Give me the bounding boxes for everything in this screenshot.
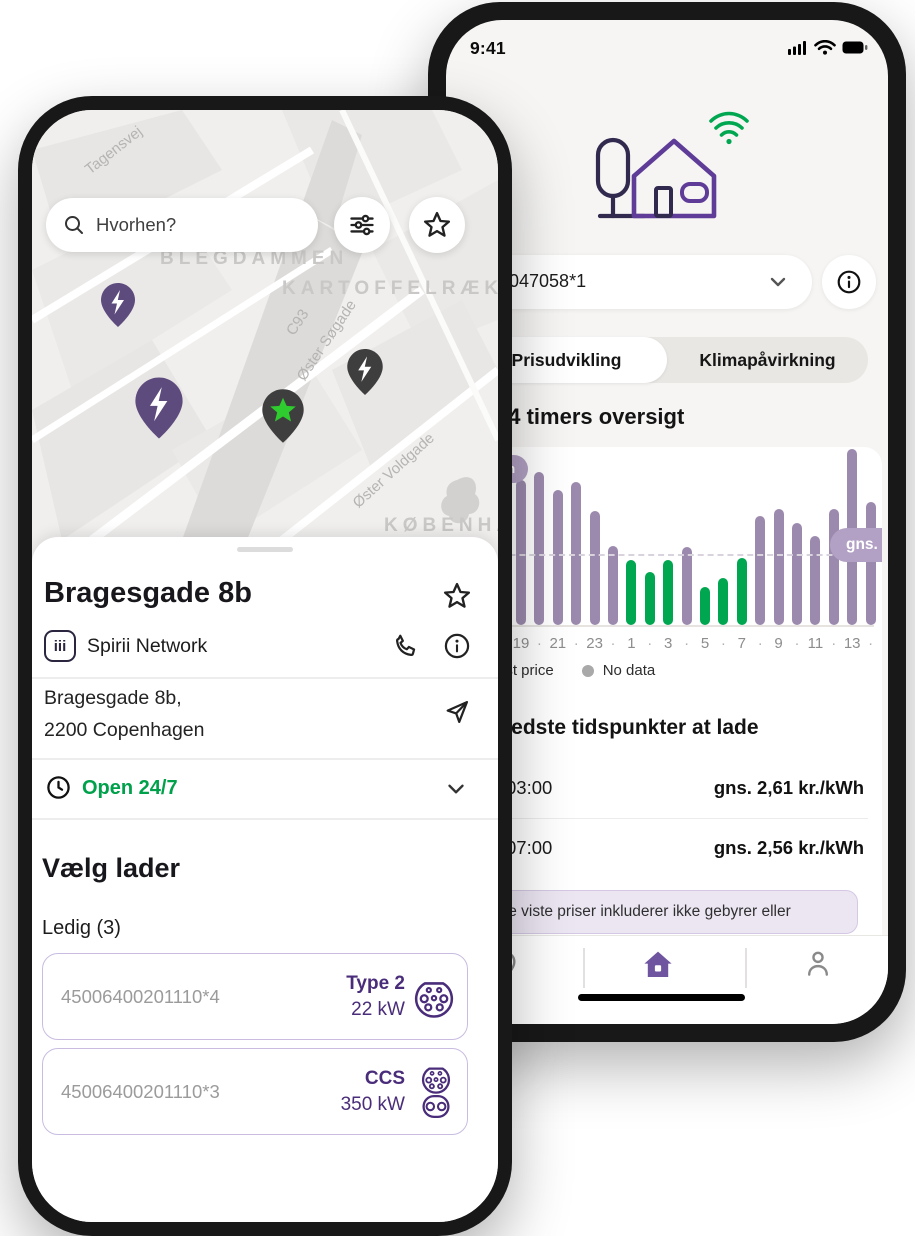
charger-pin-available[interactable] [100,282,136,333]
status-bar: 9:41 [446,34,888,64]
home-indicator[interactable] [578,994,745,1001]
legend-label-nodata: No data [603,662,656,679]
chart-bar-hour-2 [645,572,655,625]
charger-power: 22 kW [346,997,405,1023]
district-label-kartoffelraekkerne: KARTOFFELRÆKKERN [282,278,498,300]
charger-pin-available-large[interactable] [134,376,184,445]
x-tick-separator: · [795,635,800,652]
opening-hours: Open 24/7 [82,777,178,800]
average-price-badge: gns. 1,23 kr./kWh [830,528,882,562]
chart-bar-hour-0 [608,546,618,625]
navigate-icon[interactable] [443,698,471,726]
divider [32,677,498,679]
charger-power: 350 kW [341,1092,405,1118]
left-phone-frame: Tagensvej BLEGDAMMEN KARTOFFELRÆKKERN C9… [18,96,512,1236]
filter-sliders-icon [348,211,376,239]
bottom-nav-bar [446,935,888,1024]
charger-type: Type 2 [346,971,405,997]
chart-bar-hour-14 [866,502,876,625]
x-tick-separator: · [758,635,763,652]
map-canvas[interactable]: Tagensvej BLEGDAMMEN KARTOFFELRÆKKERN C9… [32,110,498,540]
nav-profile-item[interactable] [802,948,834,980]
x-tick-separator: · [574,635,579,652]
network-name: Spirii Network [87,635,207,658]
favorite-star-icon[interactable] [442,581,472,611]
chart-bar-hour-5 [700,587,710,625]
best-times-title: Bedste tidspunkter at lade [496,716,759,740]
chevron-down-icon[interactable] [443,776,469,802]
chart-bar-hour-20 [534,472,544,625]
charger-pin-selected[interactable] [261,388,305,449]
location-title: Bragesgade 8b [44,577,252,610]
device-select[interactable]: D047058*1 [466,255,812,309]
divider [466,818,868,819]
location-address: Bragesgade 8b, 2200 Copenhagen [44,682,205,746]
chart-bar-hour-8 [755,516,765,625]
address-line2: 2200 Copenhagen [44,714,205,746]
tab-klimapaavirkning[interactable]: Klimapåvirkning [667,337,868,383]
nav-divider [583,948,585,988]
x-tick-label: 21 [549,635,566,652]
chart-bar-hour-9 [774,509,784,625]
price-chart-panel: kr./kWh gns. 1,23 kr./kWh 19·21·23·1·3·5… [452,447,882,935]
x-tick-separator: · [647,635,652,652]
x-tick-separator: · [684,635,689,652]
charger-card[interactable]: 45006400201110*4 Type 2 22 kW [42,953,468,1040]
average-line [460,554,882,556]
search-input[interactable] [94,213,288,237]
home-icon [641,948,675,982]
best-time-row[interactable]: 07:00 gns. 2,56 kr./kWh [452,820,882,876]
battery-icon [842,41,868,54]
home-energy-logo [446,108,888,228]
choose-charger-title: Vælg lader [42,853,180,884]
x-tick-label: 13 [844,635,861,652]
nav-home-item[interactable] [641,948,673,980]
x-tick-label: 19 [513,635,530,652]
chart-bar-hour-10 [792,523,802,625]
price-disclaimer-note: De viste priser inkluderer ikke gebyrer … [480,890,858,934]
legend-dot-nodata [582,665,594,677]
x-tick-label: 23 [586,635,603,652]
best-price-value: gns. 2,61 kr./kWh [714,777,864,799]
device-info-button[interactable] [822,255,876,309]
right-phone-screen: 9:41 [446,20,888,1024]
charger-type: CCS [341,1066,405,1092]
left-phone-screen: Tagensvej BLEGDAMMEN KARTOFFELRÆKKERN C9… [32,110,498,1222]
favorites-button[interactable] [409,197,465,253]
address-line1: Bragesgade 8b, [44,682,205,714]
chart-bar-hour-3 [663,560,673,625]
person-icon [802,948,834,980]
location-bottom-sheet: Bragesgade 8b iii Spirii Network Bragesg… [32,537,498,1222]
search-icon [62,213,86,237]
best-time-row[interactable]: 03:00 gns. 2,61 kr./kWh [452,760,882,816]
chart-ticks: 19·21·23·1·3·5·7·9·11·13· [452,635,882,657]
x-tick-separator: · [831,635,836,652]
network-logo: iii [44,630,76,662]
search-bar[interactable] [46,198,318,252]
overview-title: 24 timers oversigt [496,404,684,430]
x-tick-separator: · [721,635,726,652]
legend-no-data: No data [582,662,656,679]
chevron-down-icon [766,270,790,294]
star-icon [422,210,452,240]
status-time: 9:41 [470,38,506,59]
info-icon[interactable] [443,632,471,660]
x-tick-label: 9 [774,635,782,652]
chart-bar-hour-19 [516,480,526,625]
x-tick-label: 5 [701,635,709,652]
charger-pin-occupied[interactable] [346,348,384,401]
availability-label: Ledig (3) [42,917,121,940]
chart-bar-hour-4 [682,547,692,625]
x-tick-label: 3 [664,635,672,652]
chart-bar-hour-6 [718,578,728,625]
charger-card[interactable]: 45006400201110*3 CCS 350 kW [42,1048,468,1135]
chart-bar-hour-1 [626,560,636,625]
phone-icon[interactable] [392,632,420,660]
house-icon [634,141,714,216]
chart-bar-hour-23 [590,511,600,625]
x-tick-separator: · [537,635,542,652]
wifi-signal-icon [711,114,747,136]
type2-connector-icon [411,974,457,1020]
x-tick-label: 11 [808,635,824,652]
clock-icon [46,775,71,800]
wifi-icon [814,40,836,55]
chart-bar-hour-21 [553,490,563,625]
divider [32,818,498,820]
filter-button[interactable] [334,197,390,253]
charger-id: 45006400201110*4 [61,986,220,1008]
x-tick-label: 7 [738,635,746,652]
best-time-value: 03:00 [506,777,552,799]
city-label-kobenhavn: KØBENHAV [384,515,498,537]
info-icon [836,269,862,295]
charger-id: 45006400201110*3 [61,1081,220,1103]
best-price-value: gns. 2,56 kr./kWh [714,837,864,859]
ccs-connector-icon [415,1062,457,1122]
segmented-control: Prisudvikling Klimapåvirkning [466,337,868,383]
nav-divider [745,948,747,988]
chart-bar-hour-11 [810,536,820,625]
x-axis-line [460,625,874,627]
chart-bar-hour-7 [737,558,747,625]
x-tick-separator: · [868,635,873,652]
chart-bar-hour-12 [829,509,839,625]
signal-icon [788,41,808,55]
x-tick-separator: · [611,635,616,652]
best-time-value: 07:00 [506,837,552,859]
tree-icon [598,140,628,196]
divider [32,758,498,760]
drag-handle[interactable] [237,547,293,552]
x-tick-label: 1 [627,635,635,652]
